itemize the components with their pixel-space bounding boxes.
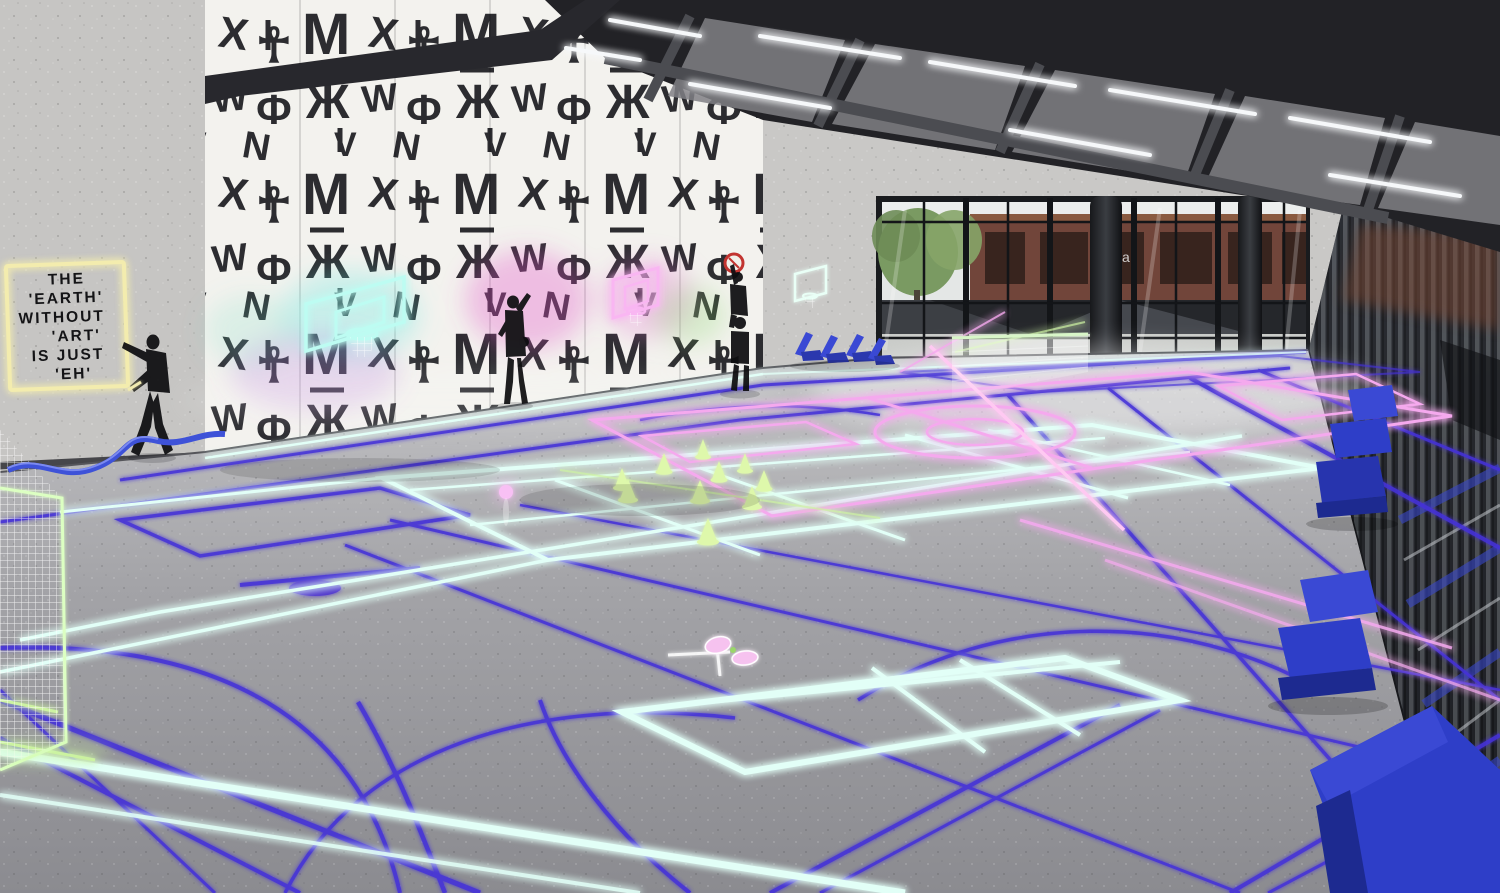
column bbox=[1090, 196, 1122, 362]
window-letter: a bbox=[1122, 249, 1130, 265]
quote-line: IS JUST bbox=[31, 346, 104, 366]
left-grey-wall bbox=[0, 0, 205, 472]
shadow bbox=[720, 390, 760, 399]
hoop-net bbox=[350, 337, 374, 357]
quote-line: 'EARTH' bbox=[28, 289, 103, 309]
quote-line: 'EH' bbox=[55, 365, 92, 383]
hoop-net bbox=[629, 313, 643, 326]
window-wall: a bbox=[872, 196, 1310, 363]
quote-line: 'ART' bbox=[51, 327, 101, 346]
screenshot-root: M X ☥ Ж W Ф V N bbox=[0, 0, 1500, 893]
shadow bbox=[128, 453, 176, 463]
shuttle bbox=[730, 647, 736, 653]
column bbox=[1238, 196, 1262, 362]
shadow bbox=[497, 402, 533, 410]
quote-line: THE bbox=[48, 270, 86, 288]
shadow bbox=[1268, 697, 1388, 715]
hoop-net bbox=[805, 298, 815, 308]
quote-line: WITHOUT bbox=[18, 308, 105, 328]
gym-scene: M X ☥ Ж W Ф V N bbox=[0, 0, 1500, 893]
shadow bbox=[790, 360, 900, 372]
shadow bbox=[1306, 517, 1398, 531]
